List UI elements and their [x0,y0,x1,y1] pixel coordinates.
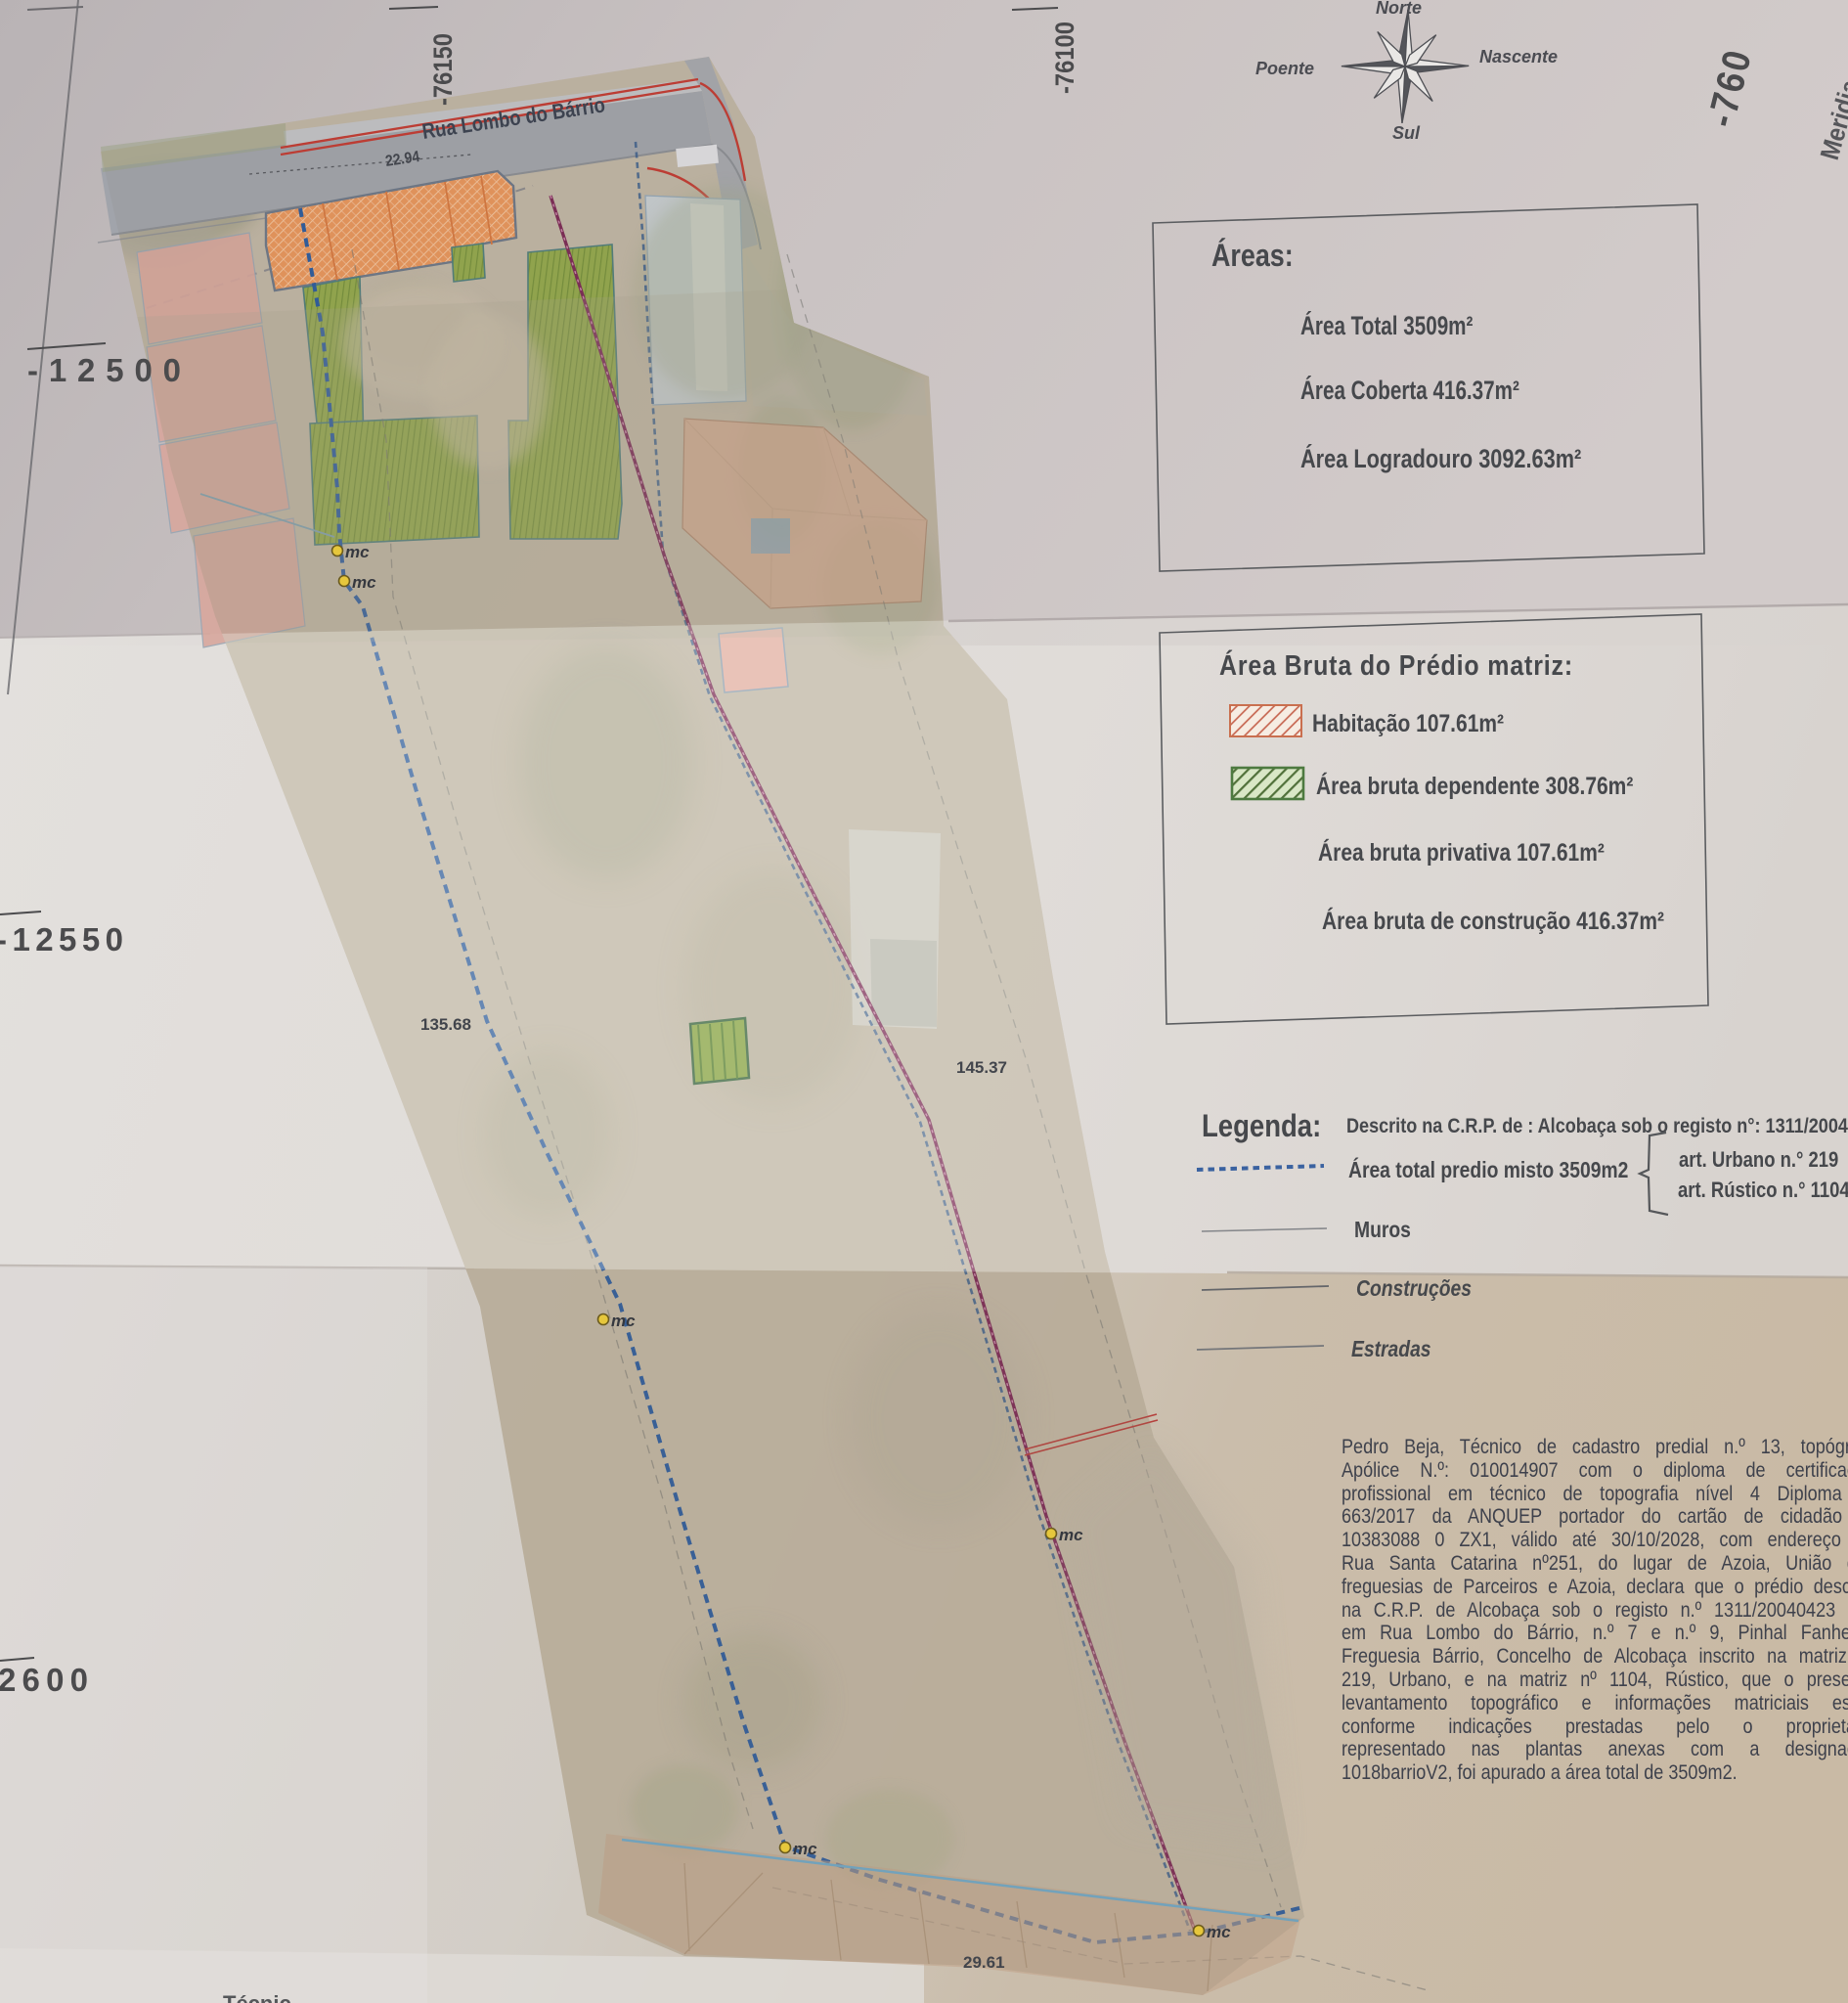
svg-text:Área total predio misto 3509m2: Área total predio misto 3509m2 [1348,1156,1628,1182]
svg-text:Área Bruta do Prédio matriz:: Área Bruta do Prédio matriz: [1219,648,1573,681]
svg-text:Área bruta dependente 308.76m²: Área bruta dependente 308.76m² [1316,771,1634,799]
svg-text:Legenda:: Legenda: [1202,1109,1321,1143]
svg-text:Área Logradouro 3092.63m²: Área Logradouro 3092.63m² [1300,444,1581,474]
svg-text:Nascente: Nascente [1479,47,1558,67]
svg-text:mc: mc [793,1840,817,1858]
svg-text:Sul: Sul [1392,123,1421,143]
svg-text:Área Coberta 416.37m²: Área Coberta 416.37m² [1300,375,1519,405]
svg-text:mc: mc [345,543,370,561]
svg-text:Descrito na C.R.P. de : Alcoba: Descrito na C.R.P. de : Alcobaça sob o r… [1346,1115,1848,1138]
svg-text:145.37: 145.37 [956,1058,1007,1077]
svg-text:-76150: -76150 [429,33,459,106]
svg-text:-76100: -76100 [1051,22,1080,94]
svg-text:Habitação 107.61m²: Habitação 107.61m² [1312,709,1504,736]
svg-text:135.68: 135.68 [420,1015,471,1034]
svg-text:mc: mc [611,1312,636,1330]
svg-text:Poente: Poente [1255,59,1314,78]
svg-text:mc: mc [352,573,376,592]
svg-text:Área Total 3509m²: Área Total 3509m² [1300,310,1474,340]
svg-text:Área bruta privativa 107.61m²: Área bruta privativa 107.61m² [1318,837,1605,866]
svg-text:Norte: Norte [1376,0,1422,18]
svg-text:art. Rústico n.° 1104: art. Rústico n.° 1104 [1678,1180,1848,1203]
svg-text:mc: mc [1207,1923,1231,1941]
svg-text:art. Urbano n.° 219: art. Urbano n.° 219 [1679,1149,1838,1173]
svg-text:Construções: Construções [1356,1277,1472,1302]
svg-text:Estradas: Estradas [1351,1338,1431,1362]
svg-text:29.61: 29.61 [963,1953,1005,1972]
svg-text:Área bruta de construção 416.3: Área bruta de construção 416.37m² [1322,906,1664,934]
svg-text:Técnic: Técnic [223,1991,291,2003]
svg-text:Muros: Muros [1354,1219,1411,1243]
svg-text:mc: mc [1059,1526,1083,1544]
svg-text:-12550: -12550 [0,921,123,957]
svg-text:Áreas:: Áreas: [1211,238,1294,274]
